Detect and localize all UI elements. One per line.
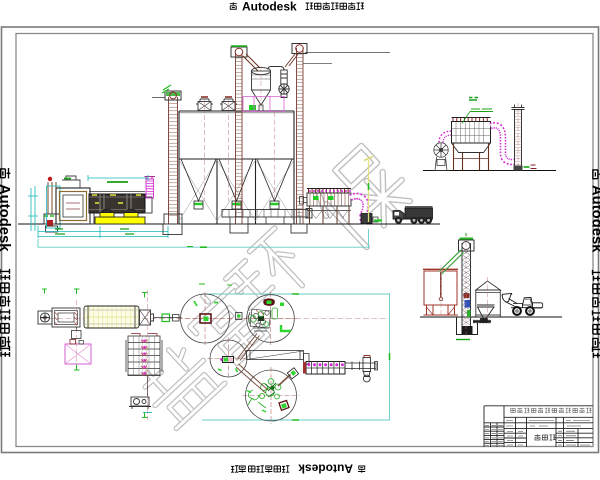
svg-text:Autodesk: Autodesk	[0, 184, 12, 252]
svg-text:Autodesk: Autodesk	[298, 462, 353, 476]
svg-text:Autodesk: Autodesk	[242, 0, 297, 14]
svg-text:Autodesk: Autodesk	[588, 185, 600, 253]
